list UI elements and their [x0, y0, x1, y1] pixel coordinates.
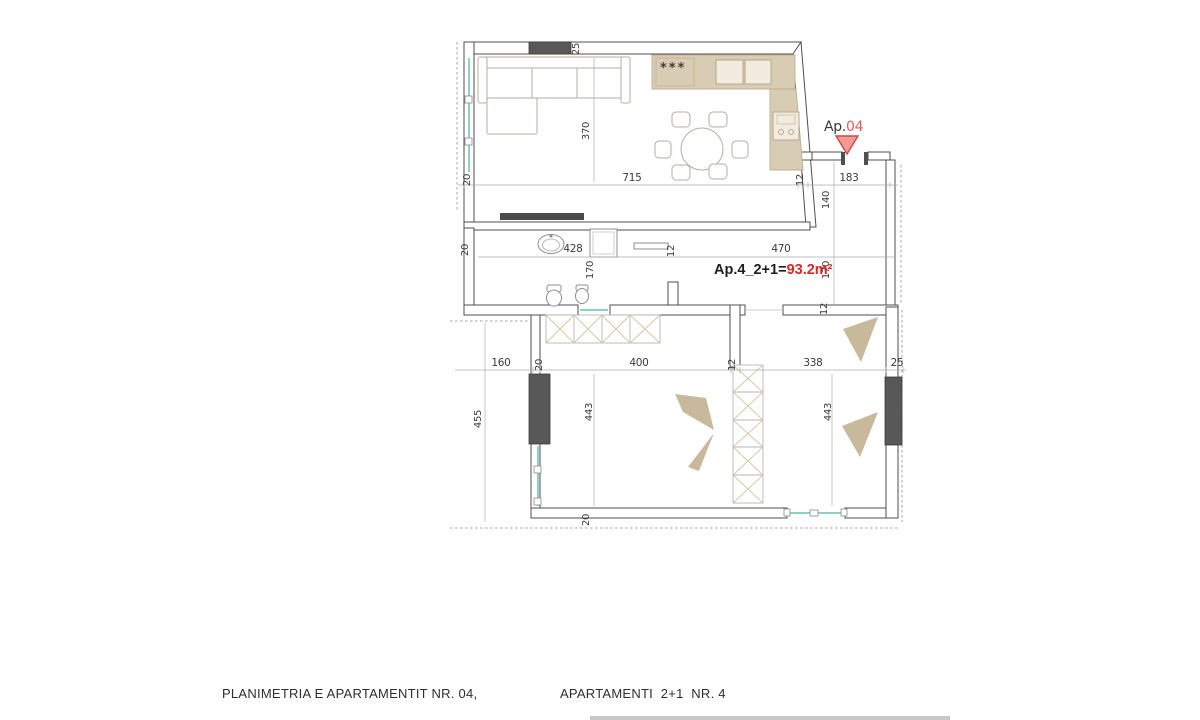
dim-wall-20: 20 [462, 174, 473, 186]
chair [709, 112, 727, 127]
dim-living-width: 715 [622, 172, 641, 184]
bottom-edge-bar [590, 716, 950, 720]
arrow-bed1-a [675, 394, 714, 430]
dim-bed2-depth: 443 [823, 403, 834, 421]
area-label: Ap.4_2+1=93.2m² [714, 262, 833, 278]
shower [590, 229, 617, 257]
chair [672, 165, 690, 180]
dim-wall-12: 12 [666, 245, 677, 257]
chair [655, 141, 671, 158]
door-jamb-left [841, 152, 845, 165]
tv-unit [500, 213, 584, 220]
dim-wall-20: 20 [581, 514, 592, 526]
sofa-arm-left [478, 57, 487, 103]
marker-prefix: Ap. [824, 119, 846, 135]
wall-entry-top-right [868, 152, 890, 160]
footer-left-line1: PLANIMETRIA E APARTAMENTIT NR. 04, [222, 686, 477, 701]
wall-bed-top-1 [464, 305, 578, 315]
chair [709, 164, 727, 179]
entrance-arrow-icon [836, 136, 858, 154]
arrow-bed2-bottom [842, 412, 878, 457]
closet-row [546, 315, 660, 343]
apartment-marker: Ap.04 [824, 119, 864, 154]
direction-arrows [675, 317, 878, 471]
dim-bed2-width: 338 [803, 357, 822, 369]
toilet [547, 290, 562, 306]
area-label-value: 93.2m² [787, 262, 833, 278]
living-room [478, 57, 630, 220]
area-label-name: Ap.4_2+1= [714, 262, 787, 278]
arrow-bed2-top [843, 317, 878, 362]
dim-bed1-depth: 443 [584, 403, 595, 421]
dim-wall-20: 20 [460, 244, 471, 256]
dim-offset-left: 160 [491, 357, 510, 369]
bidet [576, 289, 589, 304]
footer-left-title: PLANIMETRIA E APARTAMENTIT NR. 04, KATI … [222, 686, 477, 720]
wall-right-upper [886, 160, 895, 307]
wall-bed-top-3 [783, 305, 898, 315]
sofa-back [482, 57, 626, 68]
chimney-niche [529, 42, 571, 54]
sofa-seat [487, 68, 621, 98]
floor-plan-page: *** [0, 0, 1200, 720]
dim-living-depth: 370 [581, 122, 592, 140]
wall-between-bedrooms [730, 305, 740, 367]
dim-wall-20: 20 [534, 359, 545, 371]
wall-bed-bottom-left [531, 508, 787, 518]
svg-text:Ap.04: Ap.04 [824, 119, 864, 135]
dining-area [655, 112, 748, 180]
door-jamb-right [864, 152, 868, 165]
dim-wall-12: 12 [819, 303, 830, 315]
wall-bed-top-2 [610, 305, 745, 315]
bath-door-leaf [634, 243, 668, 249]
wall-bath-left [464, 228, 474, 310]
marker-number: 04 [846, 119, 864, 135]
wall-entry-top-left [812, 152, 842, 160]
kitchen-sink-right [745, 60, 771, 84]
dim-wall-12: 12 [795, 174, 806, 186]
kitchen-sink-left [716, 60, 743, 84]
dim-bath-width: 428 [563, 243, 582, 255]
dim-entry-depth: 140 [821, 191, 832, 209]
chair [732, 141, 748, 158]
footer-right-title: APARTAMENTI 2+1 NR. 4 [560, 686, 726, 702]
floor-plan: *** [0, 0, 1200, 720]
dim-bed1-width: 400 [629, 357, 648, 369]
dim-wall-12: 12 [727, 359, 738, 371]
chair [672, 112, 690, 127]
dim-entry-width: 183 [839, 172, 858, 184]
stove-burners-icon: *** [660, 61, 686, 76]
svg-text:Ap.4_2+1=93.2m²: Ap.4_2+1=93.2m² [714, 262, 833, 278]
dim-terrace-depth: 455 [473, 410, 484, 428]
arrow-bed1-b [688, 433, 714, 471]
sofa-arm-right [621, 57, 630, 103]
bathroom [538, 229, 668, 306]
dim-side-wall: 25 [891, 357, 904, 369]
sofa-chaise [487, 98, 537, 134]
dim-top-wall: 25 [571, 43, 582, 55]
wall-living-bottom [464, 222, 810, 230]
wall-living-top [464, 42, 801, 54]
dim-bath-depth: 170 [585, 261, 596, 279]
window-block-bed1 [529, 374, 550, 444]
dim-hall-width: 470 [771, 243, 790, 255]
window-block-bed2 [885, 377, 902, 445]
